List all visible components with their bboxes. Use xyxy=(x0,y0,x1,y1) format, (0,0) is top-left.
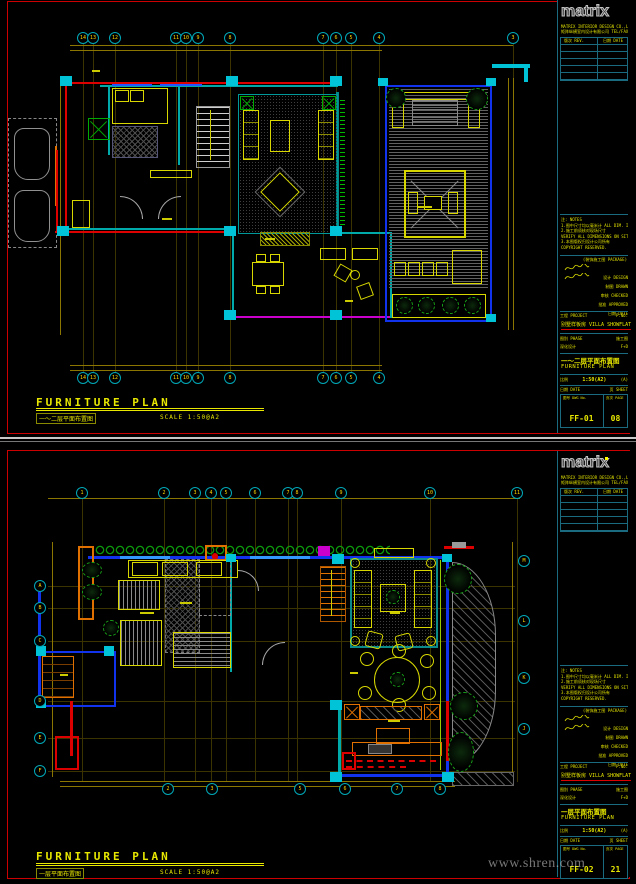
tree-icon xyxy=(466,88,488,110)
package-note: (装饰施工图 PACKAGE) xyxy=(583,257,627,263)
grid-bubble: 10 xyxy=(180,32,192,44)
cad-canvas: FURNITURE PLAN 一～二层平面布置图 SCALE 1:50@A2 m… xyxy=(0,0,636,884)
column-round xyxy=(350,636,360,646)
terrace-rug xyxy=(412,100,458,126)
wall-segment xyxy=(338,701,341,777)
rev-header: 版次 REV. xyxy=(564,489,584,495)
grid-bubble: 2 xyxy=(162,783,174,795)
bed xyxy=(118,580,160,610)
hidden-line xyxy=(346,760,436,762)
bush-icon xyxy=(418,297,435,314)
signature-row: 制图 DRAWN xyxy=(560,273,628,282)
rev-header: 版次 REV. xyxy=(564,38,584,44)
tree-icon xyxy=(444,564,472,594)
chair xyxy=(270,286,280,294)
grid-line xyxy=(341,498,342,782)
divider xyxy=(560,836,628,837)
grid-line xyxy=(351,44,352,372)
grid-bubble: 12 xyxy=(109,372,121,384)
grid-bubble: 8 xyxy=(291,487,303,499)
car xyxy=(14,128,50,180)
annotation-mark xyxy=(60,674,68,676)
outdoor-table xyxy=(452,250,482,284)
staircase xyxy=(196,106,230,168)
chair-round xyxy=(360,652,374,666)
column xyxy=(486,78,496,86)
grid-bubble: D xyxy=(34,695,46,707)
stair-arrow xyxy=(331,570,332,616)
annotation-mark xyxy=(350,672,358,674)
pillow xyxy=(130,90,144,102)
column xyxy=(226,76,238,86)
tatami-mat xyxy=(120,620,162,666)
column xyxy=(57,226,69,236)
wall-segment xyxy=(318,546,330,556)
column xyxy=(424,704,440,720)
grid-line xyxy=(93,44,94,372)
grid-bubble: 4 xyxy=(205,487,217,499)
revision-table: 版次 REV. 日期 DATE xyxy=(560,37,628,81)
signature-scribble xyxy=(564,264,590,272)
project-row: 工程 PROJECT P.NO. xyxy=(560,764,628,770)
grid-bubble: 6 xyxy=(339,783,351,795)
dim-line xyxy=(70,370,382,371)
title-underline xyxy=(36,408,264,409)
text-line: COPYRIGHT RESERVED. xyxy=(561,696,628,702)
page-label: 页次 PAGE xyxy=(606,847,624,852)
grid-line xyxy=(288,498,289,782)
grid-bubble: 13 xyxy=(87,372,99,384)
title-block: matrix MATRIX INTERIOR DESIGN CO.,LTD.矩阵… xyxy=(557,451,630,877)
grid-bubble: 6 xyxy=(330,32,342,44)
notes-block: 注: NOTES1.图中尺寸均以毫米计 ALL DIM. IN MM.2.施工前… xyxy=(561,668,628,701)
column-round xyxy=(426,558,436,568)
grid-bubble: 8 xyxy=(434,783,446,795)
grid-line xyxy=(297,498,298,782)
grid-bubble: 4 xyxy=(373,372,385,384)
column xyxy=(332,554,344,564)
sheet-2: FURNITURE PLAN 一层平面布置图 SCALE 1:50@A2 mat… xyxy=(0,442,636,884)
phase-label: 图别 PHASE xyxy=(560,787,582,793)
bench xyxy=(400,92,472,100)
revision-table: 版次 REV. 日期 DATE xyxy=(560,488,628,532)
marker xyxy=(212,553,218,559)
sofa xyxy=(318,110,334,160)
hedge-strip xyxy=(340,100,345,228)
grid-bubble: 12 xyxy=(109,32,121,44)
chair xyxy=(436,262,448,276)
wall-segment xyxy=(65,228,230,230)
divider xyxy=(560,255,628,256)
annotation-mark xyxy=(345,300,353,302)
tree-icon xyxy=(386,88,406,108)
grid-bubble: 8 xyxy=(224,32,236,44)
grid-bubble: 6 xyxy=(330,372,342,384)
signature-row: 日期 DATE xyxy=(560,751,628,760)
scale-row: 比例 1:50(A2) (A) xyxy=(560,377,628,383)
grid-bubble: F xyxy=(34,765,46,777)
grid-bubble: 9 xyxy=(192,32,204,44)
project-no-label: P.NO. xyxy=(616,764,628,770)
car xyxy=(14,190,50,242)
project-name: 别墅样板房 VILLA SHOWFLAT xyxy=(561,321,631,330)
stair-arrow xyxy=(210,110,211,160)
divider xyxy=(560,214,628,215)
text-line: 矩阵纵横室内设计有限公司 TEL/FAX xyxy=(561,29,628,34)
signature-row: 制图 DRAWN xyxy=(560,724,628,733)
project-name: 别墅样板房 VILLA SHOWFLAT xyxy=(561,772,631,781)
sheet-separator xyxy=(0,437,636,439)
phase-value: 施工图 xyxy=(616,787,628,793)
column xyxy=(60,76,72,86)
grid-bubble: 7 xyxy=(317,372,329,384)
grid-bubble: 5 xyxy=(294,783,306,795)
date-label: 日期 DATE xyxy=(560,838,580,844)
dwg-no: FF-01 xyxy=(561,414,602,423)
plan-subtitle: 一层平面布置图 xyxy=(36,868,84,879)
signature-scribble xyxy=(564,273,590,281)
dim-line xyxy=(60,781,455,782)
scale-label: 比例 xyxy=(560,828,568,834)
sheet-1: FURNITURE PLAN 一～二层平面布置图 SCALE 1:50@A2 m… xyxy=(0,0,636,437)
window xyxy=(160,84,202,86)
chair-round xyxy=(392,644,406,658)
wardrobe-box xyxy=(162,562,188,576)
project-label: 工程 PROJECT xyxy=(560,313,587,319)
wall-segment xyxy=(178,85,180,165)
divider xyxy=(560,762,628,763)
stage-right: F+D xyxy=(621,795,628,801)
divider xyxy=(560,385,628,386)
sheet-label: 页 SHEET xyxy=(610,838,628,844)
dim-line xyxy=(513,78,514,330)
sheet-label: 页 SHEET xyxy=(610,387,628,393)
grid-line xyxy=(230,44,231,372)
column xyxy=(486,314,496,322)
side-table xyxy=(350,270,360,280)
annotation-mark xyxy=(140,612,154,614)
bush-icon xyxy=(442,297,459,314)
wall-segment xyxy=(55,736,79,770)
scale-value: 1:50(A2) xyxy=(582,377,606,383)
title-underline xyxy=(36,410,264,411)
coffee-table xyxy=(270,120,290,152)
plant-icon xyxy=(82,562,102,578)
planter-column xyxy=(322,96,336,110)
paving-strip xyxy=(452,772,514,786)
column xyxy=(344,704,360,720)
annotation-mark xyxy=(390,612,400,614)
grid-bubble: 3 xyxy=(206,783,218,795)
wardrobe-box xyxy=(196,562,222,576)
wall-segment xyxy=(55,231,235,233)
bush-icon xyxy=(396,297,413,314)
project-label: 工程 PROJECT xyxy=(560,764,587,770)
planter-column xyxy=(240,96,254,110)
column xyxy=(104,646,114,656)
logo-dot xyxy=(605,457,608,460)
drawing-title-en: FURNITURE PLAN xyxy=(561,364,614,370)
wall-segment xyxy=(452,542,466,548)
stage-right: F+D xyxy=(621,344,628,350)
stage-value: 深化设计 xyxy=(560,795,576,801)
page-no: 08 xyxy=(604,414,627,423)
grid-bubble: 6 xyxy=(249,487,261,499)
grid-bubble: 8 xyxy=(224,372,236,384)
chair xyxy=(256,286,266,294)
column xyxy=(442,772,454,782)
scale-suffix: (A) xyxy=(621,828,628,834)
column xyxy=(378,78,388,86)
divider xyxy=(560,784,628,785)
date-row: 日期 DATE 页 SHEET xyxy=(560,838,628,844)
scale-row: 比例 1:50(A2) (A) xyxy=(560,828,628,834)
signature-scribble xyxy=(564,724,590,732)
wall-cap xyxy=(524,64,528,82)
planter-column xyxy=(88,118,110,140)
chair-round xyxy=(422,686,436,700)
page-cell: 页次 PAGE 08 xyxy=(603,395,627,427)
console xyxy=(150,170,192,178)
fixture xyxy=(342,752,356,770)
desk xyxy=(352,248,378,260)
divider xyxy=(560,804,628,805)
plan-subtitle: 一～二层平面布置图 xyxy=(36,413,96,424)
divider xyxy=(560,311,628,312)
notes-block: 注: NOTES1.图中尺寸均以毫米计 ALL DIM. IN MM.2.施工前… xyxy=(561,217,628,250)
grid-bubble: 10 xyxy=(180,372,192,384)
column xyxy=(224,310,236,320)
grid-bubble: A xyxy=(34,580,46,592)
dim-line xyxy=(70,50,382,51)
window xyxy=(120,556,170,559)
window xyxy=(112,84,152,86)
grid-bubble: 3 xyxy=(189,487,201,499)
wall-line xyxy=(440,560,441,770)
bed xyxy=(173,632,231,668)
counter xyxy=(352,742,442,756)
column xyxy=(442,554,452,562)
company-info: MATRIX INTERIOR DESIGN CO.,LTD.矩阵纵横室内设计有… xyxy=(561,475,628,485)
grid-bubble: C xyxy=(34,635,46,647)
column xyxy=(330,310,342,320)
cabinet xyxy=(72,200,90,228)
grid-bubble: 9 xyxy=(192,372,204,384)
grid-bubble: E xyxy=(34,732,46,744)
rev-header: 日期 DATE xyxy=(603,489,623,495)
matrix-logo: matrix xyxy=(561,454,609,472)
signature-row: 批准 APPROVED xyxy=(560,291,628,300)
scale-suffix: (A) xyxy=(621,377,628,383)
sheet-separator xyxy=(0,441,636,442)
grid-bubble: 7 xyxy=(317,32,329,44)
wall-segment xyxy=(78,546,94,620)
dim-line xyxy=(512,542,513,772)
divider xyxy=(560,706,628,707)
pavilion-seat xyxy=(408,192,418,214)
project-no-label: P.NO. xyxy=(616,313,628,319)
pavilion-seat xyxy=(448,192,458,214)
sofa xyxy=(354,570,372,628)
wall-segment xyxy=(65,82,67,234)
grid-bubble: 5 xyxy=(345,32,357,44)
pillow xyxy=(115,90,129,102)
signature-scribble xyxy=(564,715,590,723)
staircase xyxy=(320,566,346,622)
chair-round xyxy=(358,686,372,700)
phase-label: 图别 PHASE xyxy=(560,336,582,342)
annotation-mark xyxy=(92,70,100,72)
annotation-mark xyxy=(418,206,432,208)
page-no: 21 xyxy=(604,865,627,874)
console xyxy=(374,548,414,558)
column xyxy=(330,772,342,782)
scale-label: 比例 xyxy=(560,377,568,383)
title-underline xyxy=(36,865,264,866)
grid-bubble: B xyxy=(34,602,46,614)
divider xyxy=(560,665,628,666)
plant-icon xyxy=(82,584,102,600)
grid-line xyxy=(513,44,514,80)
plant-icon xyxy=(386,590,400,604)
bush-icon xyxy=(448,732,474,772)
sofa xyxy=(414,570,432,628)
grid-line xyxy=(48,701,515,702)
dwg-label: 图号 DWG No. xyxy=(563,396,587,401)
grid-bubble: 3 xyxy=(507,32,519,44)
dwg-no-cell: 图号 DWG No. FF-01 xyxy=(561,395,602,427)
grid-bubble: 5 xyxy=(220,487,232,499)
annotation-mark xyxy=(162,218,172,220)
window xyxy=(250,556,310,559)
signature-row: 设计 DESIGN xyxy=(560,715,628,724)
grid-bubble: 4 xyxy=(373,32,385,44)
signature-rows: 设计 DESIGN制图 DRAWN审核 CHECKED批准 APPROVED日期… xyxy=(560,264,628,309)
grid-bubble: 5 xyxy=(345,372,357,384)
stage-row: 深化设计 F+D xyxy=(560,344,628,350)
company-info: MATRIX INTERIOR DESIGN CO.,LTD.矩阵纵横室内设计有… xyxy=(561,24,628,34)
grid-bubble: 9 xyxy=(335,487,347,499)
appliance xyxy=(368,744,392,754)
grid-bubble: L xyxy=(518,615,530,627)
page-cell: 页次 PAGE 21 xyxy=(603,846,627,878)
wall-segment xyxy=(56,150,58,233)
package-note: (装饰施工图 PACKAGE) xyxy=(583,708,627,714)
divider xyxy=(560,825,628,826)
counter xyxy=(360,706,422,720)
dim-line xyxy=(60,85,61,335)
column xyxy=(226,554,236,562)
divider xyxy=(560,353,628,354)
phase-value: 施工图 xyxy=(616,336,628,342)
dim-line xyxy=(508,78,509,330)
grid-bubble: M xyxy=(518,555,530,567)
title-block: matrix MATRIX INTERIOR DESIGN CO.,LTD.矩阵… xyxy=(557,0,630,433)
stage-value: 深化设计 xyxy=(560,344,576,350)
text-line: COPYRIGHT RESERVED. xyxy=(561,245,628,251)
signature-row: 设计 DESIGN xyxy=(560,264,628,273)
plant-icon xyxy=(103,620,119,636)
wardrobe-box xyxy=(132,562,158,576)
chair-round xyxy=(420,654,434,668)
bathroom-floor xyxy=(112,126,158,158)
grid-bubble: 7 xyxy=(391,783,403,795)
chair xyxy=(394,262,406,276)
column-round xyxy=(426,636,436,646)
column xyxy=(224,226,236,236)
grid-bubble: K xyxy=(518,672,530,684)
sofa xyxy=(243,110,259,160)
dim-line xyxy=(70,365,382,366)
project-row: 工程 PROJECT P.NO. xyxy=(560,313,628,319)
drawing-number-box: 图号 DWG No. FF-01 页次 PAGE 08 xyxy=(560,394,628,428)
title-underline xyxy=(36,863,264,864)
stage-row: 深化设计 F+D xyxy=(560,795,628,801)
dining-table xyxy=(252,262,284,286)
grid-bubble: 2 xyxy=(158,487,170,499)
grid-line xyxy=(379,44,380,372)
divider xyxy=(560,333,628,334)
wall-segment xyxy=(232,316,392,318)
column xyxy=(330,700,342,710)
wall-segment xyxy=(338,232,392,234)
tree-icon xyxy=(450,692,478,720)
phase-row: 图别 PHASE 施工图 xyxy=(560,336,628,342)
chair xyxy=(256,254,266,262)
cabinet xyxy=(42,656,74,698)
date-row: 日期 DATE 页 SHEET xyxy=(560,387,628,393)
signature-row: 审核 CHECKED xyxy=(560,733,628,742)
wall-segment xyxy=(70,701,73,756)
text-line: 矩阵纵横室内设计有限公司 TEL/FAX xyxy=(561,480,628,485)
column xyxy=(36,646,46,656)
page-label: 页次 PAGE xyxy=(606,396,624,401)
signature-row: 批准 APPROVED xyxy=(560,742,628,751)
plan-scale: SCALE 1:50@A2 xyxy=(160,414,220,421)
grid-bubble: 1 xyxy=(76,487,88,499)
wall-segment xyxy=(338,774,450,777)
grid-bubble: J xyxy=(518,723,530,735)
grid-bubble: 10 xyxy=(424,487,436,499)
grid-bubble: 13 xyxy=(87,32,99,44)
column xyxy=(330,226,342,236)
annotation-mark xyxy=(265,238,275,240)
annotation-mark xyxy=(388,720,400,722)
matrix-logo: matrix xyxy=(561,3,609,21)
rev-header: 日期 DATE xyxy=(603,38,623,44)
plan-title: FURNITURE PLAN xyxy=(36,850,171,863)
grid-line xyxy=(255,498,256,782)
chair xyxy=(422,262,434,276)
column-round xyxy=(350,558,360,568)
bush-icon xyxy=(464,297,481,314)
dwg-label: 图号 DWG No. xyxy=(563,847,587,852)
signature-row: 审核 CHECKED xyxy=(560,282,628,291)
grid-line xyxy=(198,44,199,372)
divider xyxy=(560,374,628,375)
phase-row: 图别 PHASE 施工图 xyxy=(560,787,628,793)
dim-line xyxy=(70,45,513,46)
scale-value: 1:50(A2) xyxy=(582,828,606,834)
column xyxy=(330,76,342,86)
wall-segment xyxy=(232,232,234,318)
grid-line xyxy=(82,498,83,782)
annotation-mark xyxy=(180,602,192,604)
chair xyxy=(270,254,280,262)
grid-line xyxy=(517,498,518,782)
drawing-title-en: FURNITURE PLAN xyxy=(561,815,614,821)
watermark: www.shren.com xyxy=(488,856,585,872)
